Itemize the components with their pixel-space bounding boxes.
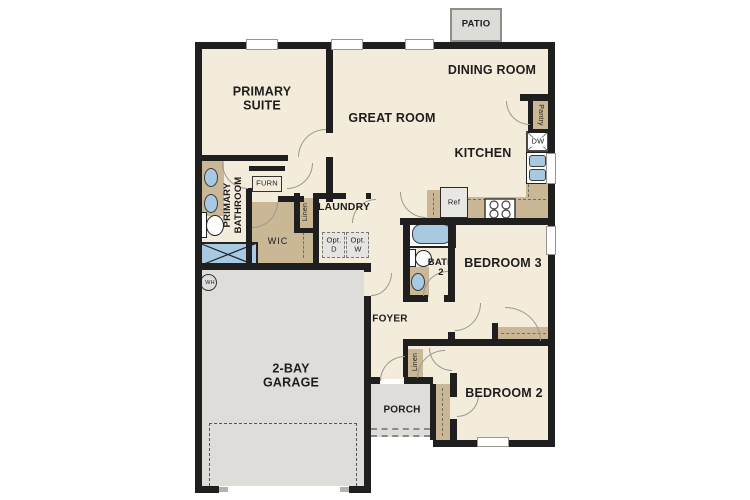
laundry-label: LAUNDRY [318, 201, 370, 213]
floor-plan: WH Ref DW [0, 0, 750, 500]
wall [528, 129, 555, 133]
opt-dryer-label: Opt. D [327, 236, 342, 253]
wall [202, 155, 288, 161]
bedroom3-label: BEDROOM 3 [464, 256, 542, 270]
wall [371, 377, 380, 384]
wic-label: WIC [268, 236, 289, 246]
window [246, 39, 278, 50]
refrigerator-label: Ref [448, 199, 460, 208]
wall [195, 486, 219, 493]
pantry-label: Pantry [536, 104, 544, 125]
foyer-label: FOYER [372, 313, 407, 325]
wall [364, 296, 371, 493]
kitchen-sink-basin-1 [529, 155, 546, 167]
wall [404, 377, 433, 384]
opt-washer-label: Opt. W [351, 236, 366, 253]
porch-label: PORCH [383, 404, 420, 416]
garage-label: 2-BAY GARAGE [263, 362, 319, 391]
wall [450, 373, 457, 397]
garage-door-jamb-left [219, 487, 228, 492]
window [331, 39, 363, 50]
water-heater-label: WH [205, 280, 215, 286]
wall [520, 94, 555, 101]
window [477, 437, 509, 447]
great-room-label: GREAT ROOM [348, 111, 435, 125]
wall [430, 384, 436, 440]
linen-hall-label: Linen [302, 203, 310, 221]
garage-door-jamb-right [340, 487, 349, 492]
wall [403, 218, 410, 302]
wall [403, 295, 428, 302]
wall [313, 193, 346, 199]
wall [249, 166, 285, 171]
window [405, 39, 434, 50]
wall [400, 218, 555, 225]
furnace-label: FURN [256, 180, 278, 189]
window [546, 226, 556, 255]
bedroom2-closet [436, 384, 450, 440]
vanity-sink-2 [204, 194, 218, 213]
window [546, 153, 556, 184]
bedroom2-closet-dash [442, 388, 443, 436]
wall [450, 419, 457, 442]
wall [366, 193, 371, 199]
kitchen-label: KITCHEN [455, 146, 512, 160]
wall [326, 49, 333, 133]
primary-suite-label: PRIMARY SUITE [233, 85, 292, 114]
dining-room-label: DINING ROOM [448, 63, 536, 77]
tub [412, 224, 452, 244]
hall-closet-dash [433, 193, 434, 215]
bedroom2-label: BEDROOM 2 [465, 386, 543, 400]
bath2-label: BATH 2 [428, 258, 454, 278]
vanity-sink-1 [204, 168, 218, 187]
dishwasher-label: DW [531, 138, 546, 147]
wall [294, 193, 300, 233]
patio-label: PATIO [462, 20, 491, 31]
garage-door-dashed-outline [209, 423, 357, 486]
wall [278, 196, 304, 202]
wall [492, 323, 498, 341]
linen-foyer-label: Linen [412, 353, 420, 371]
porch-steps-hatch [371, 428, 430, 437]
kitchen-sink-basin-2 [529, 169, 546, 181]
bath2-sink [411, 273, 425, 291]
wic-dash [303, 232, 304, 258]
wall [195, 263, 371, 270]
primary-bathroom-label: PRIMARY BATHROOM [223, 177, 245, 234]
